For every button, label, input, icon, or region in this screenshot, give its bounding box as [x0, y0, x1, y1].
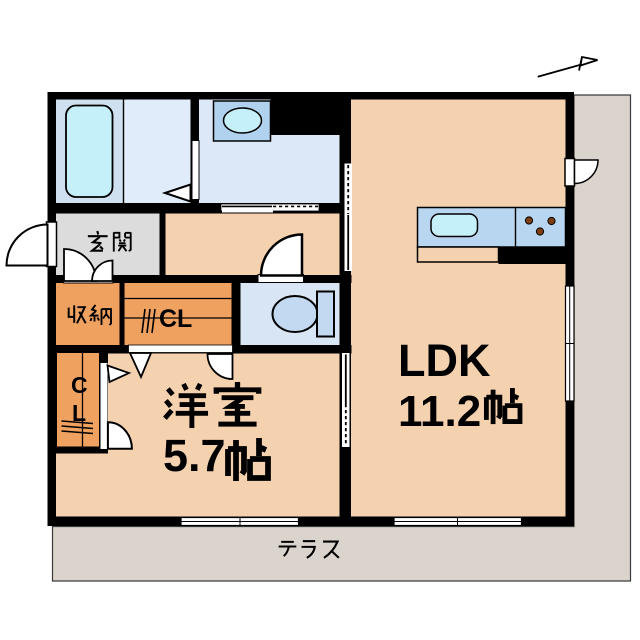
svg-text:C: C: [71, 372, 88, 398]
svg-text:L: L: [72, 400, 86, 426]
svg-text:CL: CL: [159, 305, 192, 333]
svg-text:11.2: 11.2: [398, 387, 481, 436]
svg-text:LDK: LDK: [398, 335, 491, 386]
svg-text:5.7: 5.7: [163, 430, 226, 481]
